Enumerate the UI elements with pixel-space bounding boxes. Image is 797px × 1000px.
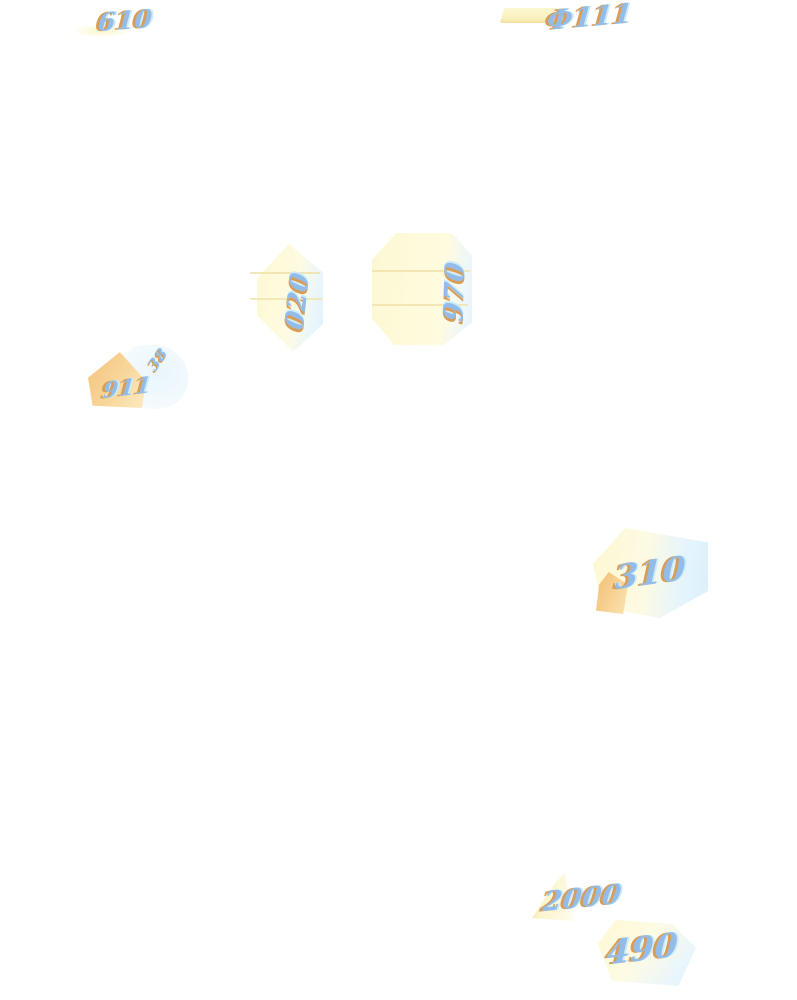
stamp-number: 2000 — [541, 881, 624, 917]
stamp-mark-bottom-right: 490 — [595, 915, 700, 990]
stamp-number: 911 — [102, 374, 153, 402]
stamp-number: Ф111 — [546, 0, 634, 35]
stamp-mark-top-right: Ф111 — [495, 0, 635, 50]
stamp-number: 310 — [615, 551, 687, 594]
stamp-mark-mid-center: 970 — [370, 230, 480, 350]
stamp-number: 490 — [606, 927, 679, 969]
stamp-number-rotated: 020 — [281, 259, 315, 344]
stamp-number: 610 — [97, 6, 154, 35]
stamp-mark-right-mid: 310 — [590, 525, 715, 620]
stamp-mark-left-cluster: 38 911 — [85, 340, 195, 420]
stamp-number-rotated: 970 — [440, 250, 470, 334]
scanned-page: 610 Ф111 020 970 38 911 310 2000 490 — [0, 0, 797, 1000]
stamp-mark-mid-left: 020 — [250, 240, 340, 360]
stamp-mark-top-left: 610 — [60, 0, 180, 50]
